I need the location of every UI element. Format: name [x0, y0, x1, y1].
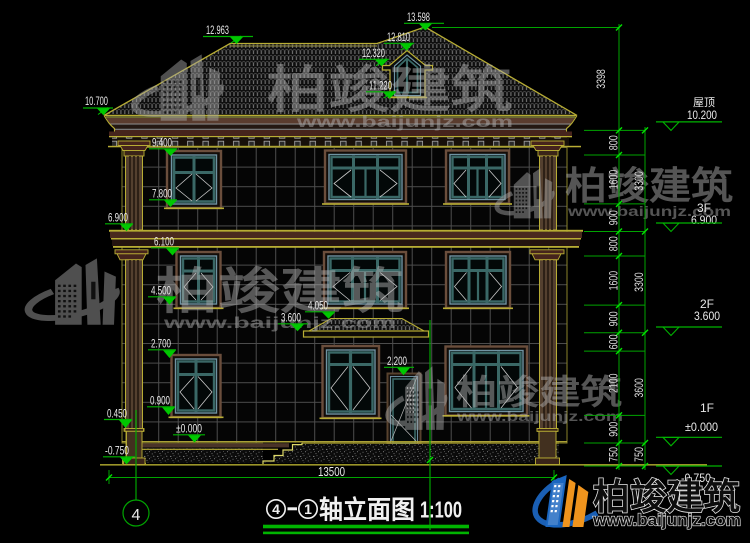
svg-text:12.810: 12.810: [387, 32, 410, 44]
svg-text:www.baijunjz.com: www.baijunjz.com: [456, 408, 623, 424]
svg-text:12.963: 12.963: [206, 25, 229, 37]
svg-text:900: 900: [609, 311, 621, 326]
svg-text:柏竣建筑: 柏竣建筑: [456, 373, 622, 412]
svg-text:6.900: 6.900: [691, 213, 717, 227]
svg-text:3600: 3600: [634, 378, 646, 398]
svg-text:1:100: 1:100: [420, 497, 462, 523]
svg-text:6.900: 6.900: [108, 213, 128, 225]
svg-text:1600: 1600: [609, 271, 621, 291]
svg-text:13.598: 13.598: [407, 12, 430, 24]
svg-text:750: 750: [609, 447, 621, 462]
svg-text:±0.000: ±0.000: [685, 420, 718, 434]
svg-text:800: 800: [609, 135, 621, 150]
svg-text:0.900: 0.900: [150, 396, 170, 408]
svg-text:3.600: 3.600: [281, 313, 301, 325]
svg-text:10.700: 10.700: [85, 96, 108, 108]
svg-text:轴立面图: 轴立面图: [319, 496, 415, 525]
svg-text:13500: 13500: [318, 465, 345, 479]
svg-text:±0.000: ±0.000: [176, 424, 202, 436]
svg-text:2.200: 2.200: [387, 356, 407, 368]
svg-text:1F: 1F: [700, 401, 714, 415]
svg-text:1: 1: [304, 501, 312, 517]
svg-text:750: 750: [634, 447, 646, 462]
svg-text:9.400: 9.400: [152, 138, 172, 150]
svg-text:900: 900: [609, 422, 621, 437]
svg-text:3300: 3300: [634, 171, 646, 191]
svg-text:0.450: 0.450: [107, 409, 127, 421]
svg-text:11.220: 11.220: [369, 81, 392, 93]
svg-text:2100: 2100: [609, 374, 621, 394]
svg-text:4: 4: [272, 501, 280, 517]
svg-text:3300: 3300: [634, 272, 646, 292]
svg-text:12.320: 12.320: [362, 48, 385, 60]
svg-text:www.baijunjz.com: www.baijunjz.com: [592, 512, 741, 530]
svg-text:10.200: 10.200: [687, 108, 717, 122]
svg-text:www.baijunjz.com: www.baijunjz.com: [295, 114, 513, 131]
svg-text:600: 600: [609, 334, 621, 349]
svg-text:柏竣建筑: 柏竣建筑: [156, 265, 404, 319]
svg-text:3398: 3398: [596, 69, 608, 89]
svg-text:1600: 1600: [609, 170, 621, 190]
svg-text:-0.750: -0.750: [105, 446, 129, 458]
svg-text:4: 4: [132, 507, 141, 524]
svg-text:6.100: 6.100: [154, 237, 174, 249]
svg-text:4.050: 4.050: [308, 301, 328, 313]
svg-text:4.500: 4.500: [151, 286, 171, 298]
svg-text:7.800: 7.800: [152, 189, 172, 201]
svg-text:3.600: 3.600: [694, 309, 720, 323]
svg-text:2.700: 2.700: [151, 339, 171, 351]
svg-text:800: 800: [609, 236, 621, 251]
svg-text:900: 900: [609, 210, 621, 225]
